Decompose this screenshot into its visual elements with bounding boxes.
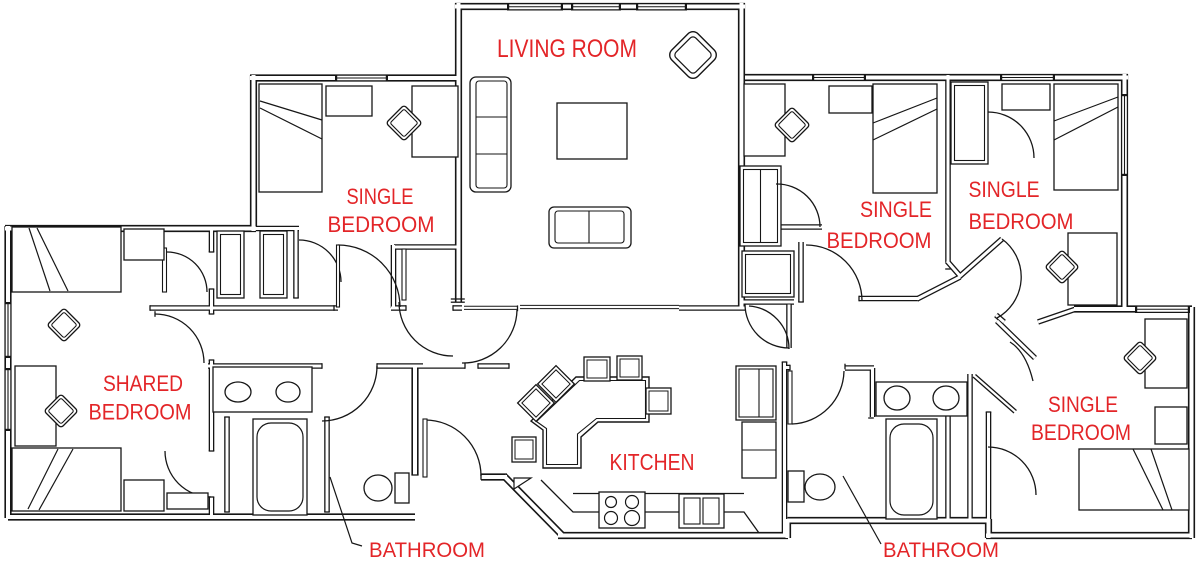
svg-text:BEDROOM: BEDROOM bbox=[89, 400, 192, 425]
svg-text:BATHROOM: BATHROOM bbox=[369, 538, 485, 561]
svg-text:BEDROOM: BEDROOM bbox=[1031, 420, 1131, 445]
svg-text:BEDROOM: BEDROOM bbox=[827, 228, 932, 253]
svg-text:KITCHEN: KITCHEN bbox=[610, 449, 695, 475]
svg-text:SHARED: SHARED bbox=[103, 371, 183, 396]
svg-text:SINGLE: SINGLE bbox=[1048, 392, 1118, 417]
svg-text:SINGLE: SINGLE bbox=[969, 177, 1040, 202]
svg-text:BEDROOM: BEDROOM bbox=[969, 209, 1074, 234]
svg-text:SINGLE: SINGLE bbox=[347, 184, 414, 209]
svg-text:SINGLE: SINGLE bbox=[860, 197, 932, 222]
svg-text:BATHROOM: BATHROOM bbox=[883, 538, 999, 561]
svg-text:BEDROOM: BEDROOM bbox=[328, 212, 435, 237]
svg-text:LIVING ROOM: LIVING ROOM bbox=[497, 35, 637, 63]
